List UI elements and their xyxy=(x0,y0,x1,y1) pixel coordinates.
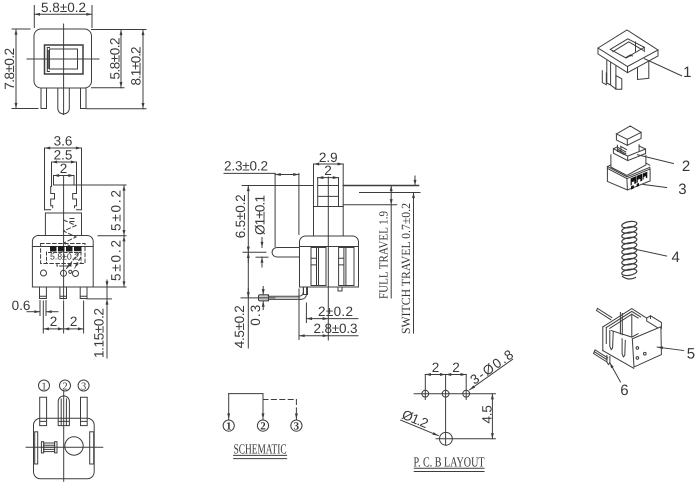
svg-text:1: 1 xyxy=(41,381,46,392)
svg-text:2: 2 xyxy=(682,158,690,175)
svg-text:6.5±0.2: 6.5±0.2 xyxy=(233,194,248,238)
svg-text:2: 2 xyxy=(50,314,58,329)
svg-text:3: 3 xyxy=(81,381,86,392)
svg-text:3.6: 3.6 xyxy=(54,134,73,149)
svg-text:SWITCH TRAVEL 0.7±0.2: SWITCH TRAVEL 0.7±0.2 xyxy=(399,203,413,334)
svg-text:3: 3 xyxy=(678,181,686,198)
svg-text:2: 2 xyxy=(324,163,332,178)
svg-text:5.8±0.2: 5.8±0.2 xyxy=(108,38,123,80)
svg-text:1: 1 xyxy=(683,64,691,81)
svg-text:5±0.2: 5±0.2 xyxy=(109,240,124,281)
svg-text:1.15±0.2: 1.15±0.2 xyxy=(92,308,107,358)
svg-text:2±0.2: 2±0.2 xyxy=(318,304,353,319)
svg-text:2: 2 xyxy=(60,161,68,176)
svg-text:1: 1 xyxy=(226,421,232,433)
svg-text:5: 5 xyxy=(687,345,695,362)
svg-text:0.3: 0.3 xyxy=(248,305,263,326)
svg-text:2: 2 xyxy=(432,360,440,375)
svg-text:2: 2 xyxy=(62,381,67,392)
svg-text:3-Ø0.8: 3-Ø0.8 xyxy=(467,347,516,388)
svg-text:8.1±0.2: 8.1±0.2 xyxy=(129,47,144,86)
svg-text:4.5: 4.5 xyxy=(480,405,495,424)
svg-text:0.6: 0.6 xyxy=(12,298,31,313)
svg-text:Ø1.2: Ø1.2 xyxy=(400,407,431,431)
svg-text:3: 3 xyxy=(294,421,300,433)
svg-text:2: 2 xyxy=(452,360,460,375)
svg-text:5±0.2: 5±0.2 xyxy=(109,190,124,231)
svg-text:5.8±0.2: 5.8±0.2 xyxy=(41,0,86,15)
svg-text:7.8±0.2: 7.8±0.2 xyxy=(2,48,17,90)
svg-text:Ø1±0.1: Ø1±0.1 xyxy=(253,195,268,235)
svg-text:2.8±0.3: 2.8±0.3 xyxy=(314,321,358,336)
svg-text:2: 2 xyxy=(260,421,266,433)
svg-text:2.3±0.2: 2.3±0.2 xyxy=(224,159,268,174)
svg-text:4.5±0.2: 4.5±0.2 xyxy=(232,305,247,348)
svg-text:2: 2 xyxy=(70,314,78,329)
svg-text:FULL TRAVEL 1.9: FULL TRAVEL 1.9 xyxy=(377,211,391,299)
svg-text:4: 4 xyxy=(672,249,680,266)
svg-text:6: 6 xyxy=(620,382,628,399)
